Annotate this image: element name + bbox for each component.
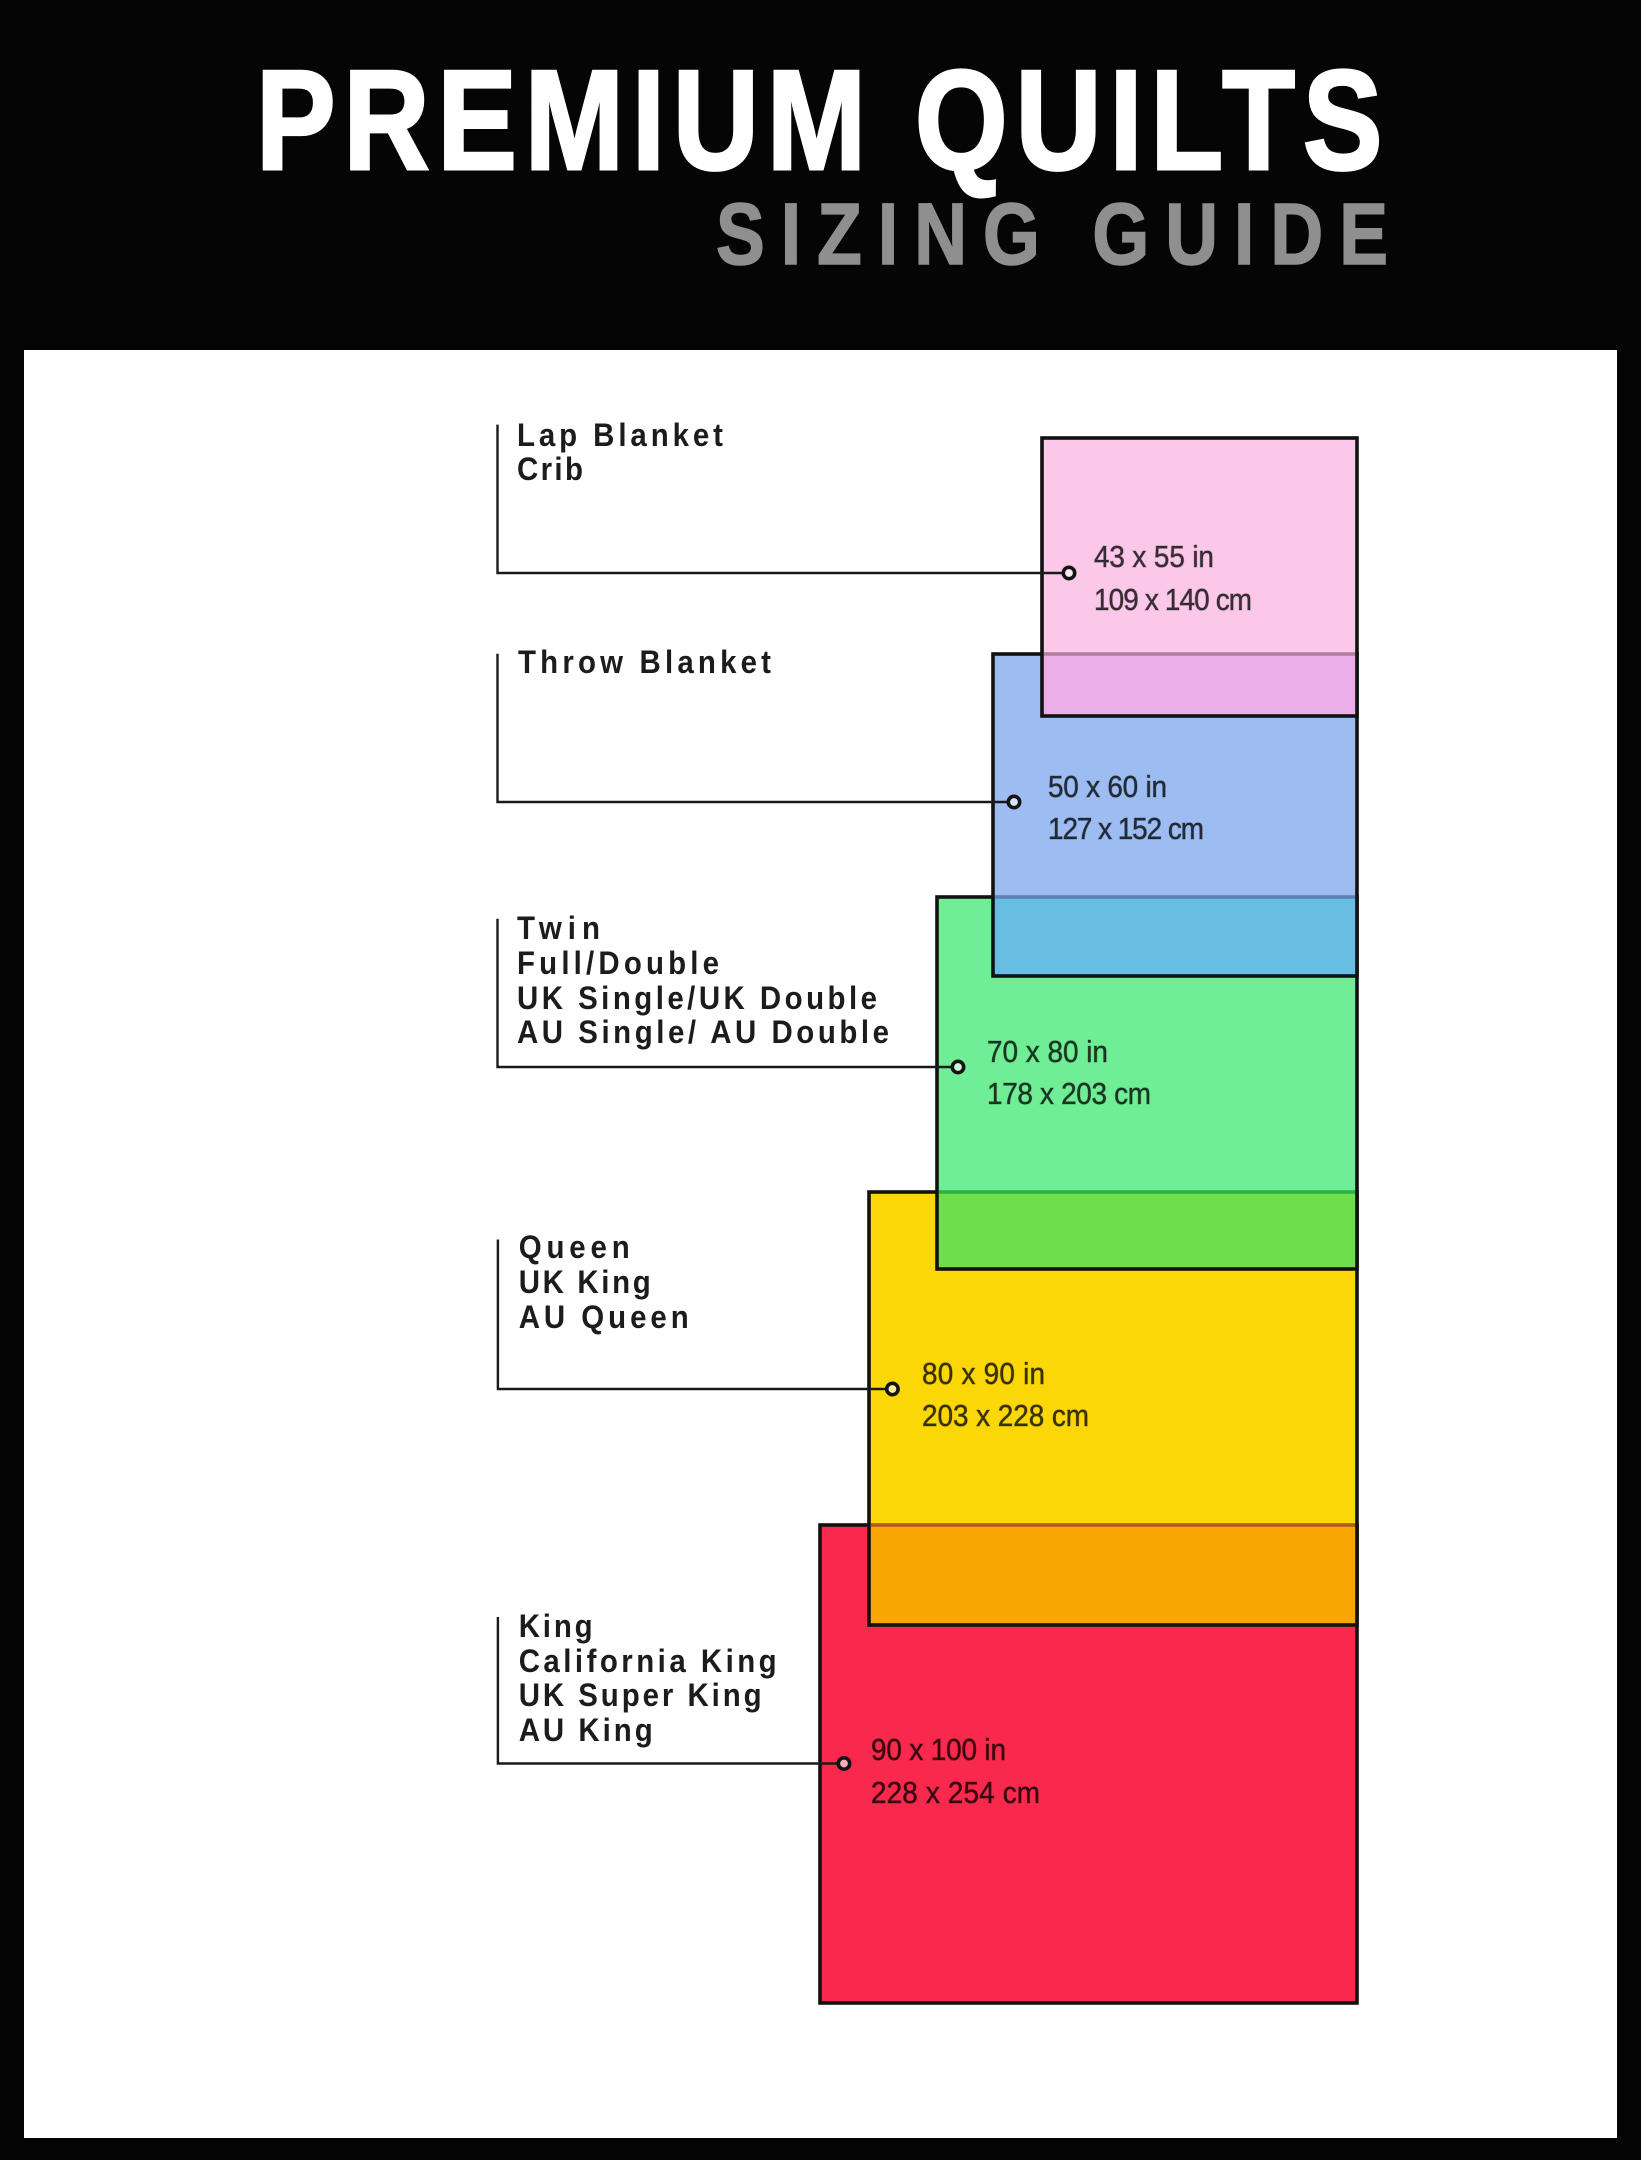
svg-text:AU Single/ AU Double: AU Single/ AU Double [517, 1014, 889, 1050]
svg-text:178 x 203 cm: 178 x 203 cm [987, 1077, 1151, 1112]
svg-text:80 x 90 in: 80 x 90 in [922, 1357, 1045, 1392]
svg-text:Twin: Twin [517, 910, 600, 946]
svg-text:228 x 254 cm: 228 x 254 cm [871, 1776, 1040, 1811]
svg-text:90 x 100 in: 90 x 100 in [871, 1733, 1006, 1768]
svg-text:PREMIUM QUILTS: PREMIUM QUILTS [256, 40, 1382, 199]
svg-text:203 x 228 cm: 203 x 228 cm [922, 1399, 1089, 1434]
svg-text:Crib: Crib [517, 451, 583, 487]
svg-text:King: King [519, 1608, 593, 1644]
svg-text:43 x 55 in: 43 x 55 in [1094, 540, 1214, 575]
svg-text:Lap Blanket: Lap Blanket [517, 417, 723, 453]
svg-text:109 x 140 cm: 109 x 140 cm [1094, 583, 1252, 618]
svg-text:California King: California King [519, 1643, 777, 1679]
svg-text:127 x 152 cm: 127 x 152 cm [1048, 812, 1204, 847]
svg-text:Queen: Queen [519, 1229, 630, 1265]
svg-text:Throw Blanket: Throw Blanket [518, 644, 771, 680]
svg-text:50 x 60 in: 50 x 60 in [1048, 770, 1167, 805]
svg-text:70 x 80 in: 70 x 80 in [987, 1035, 1108, 1070]
svg-text:AU Queen: AU Queen [519, 1299, 689, 1335]
